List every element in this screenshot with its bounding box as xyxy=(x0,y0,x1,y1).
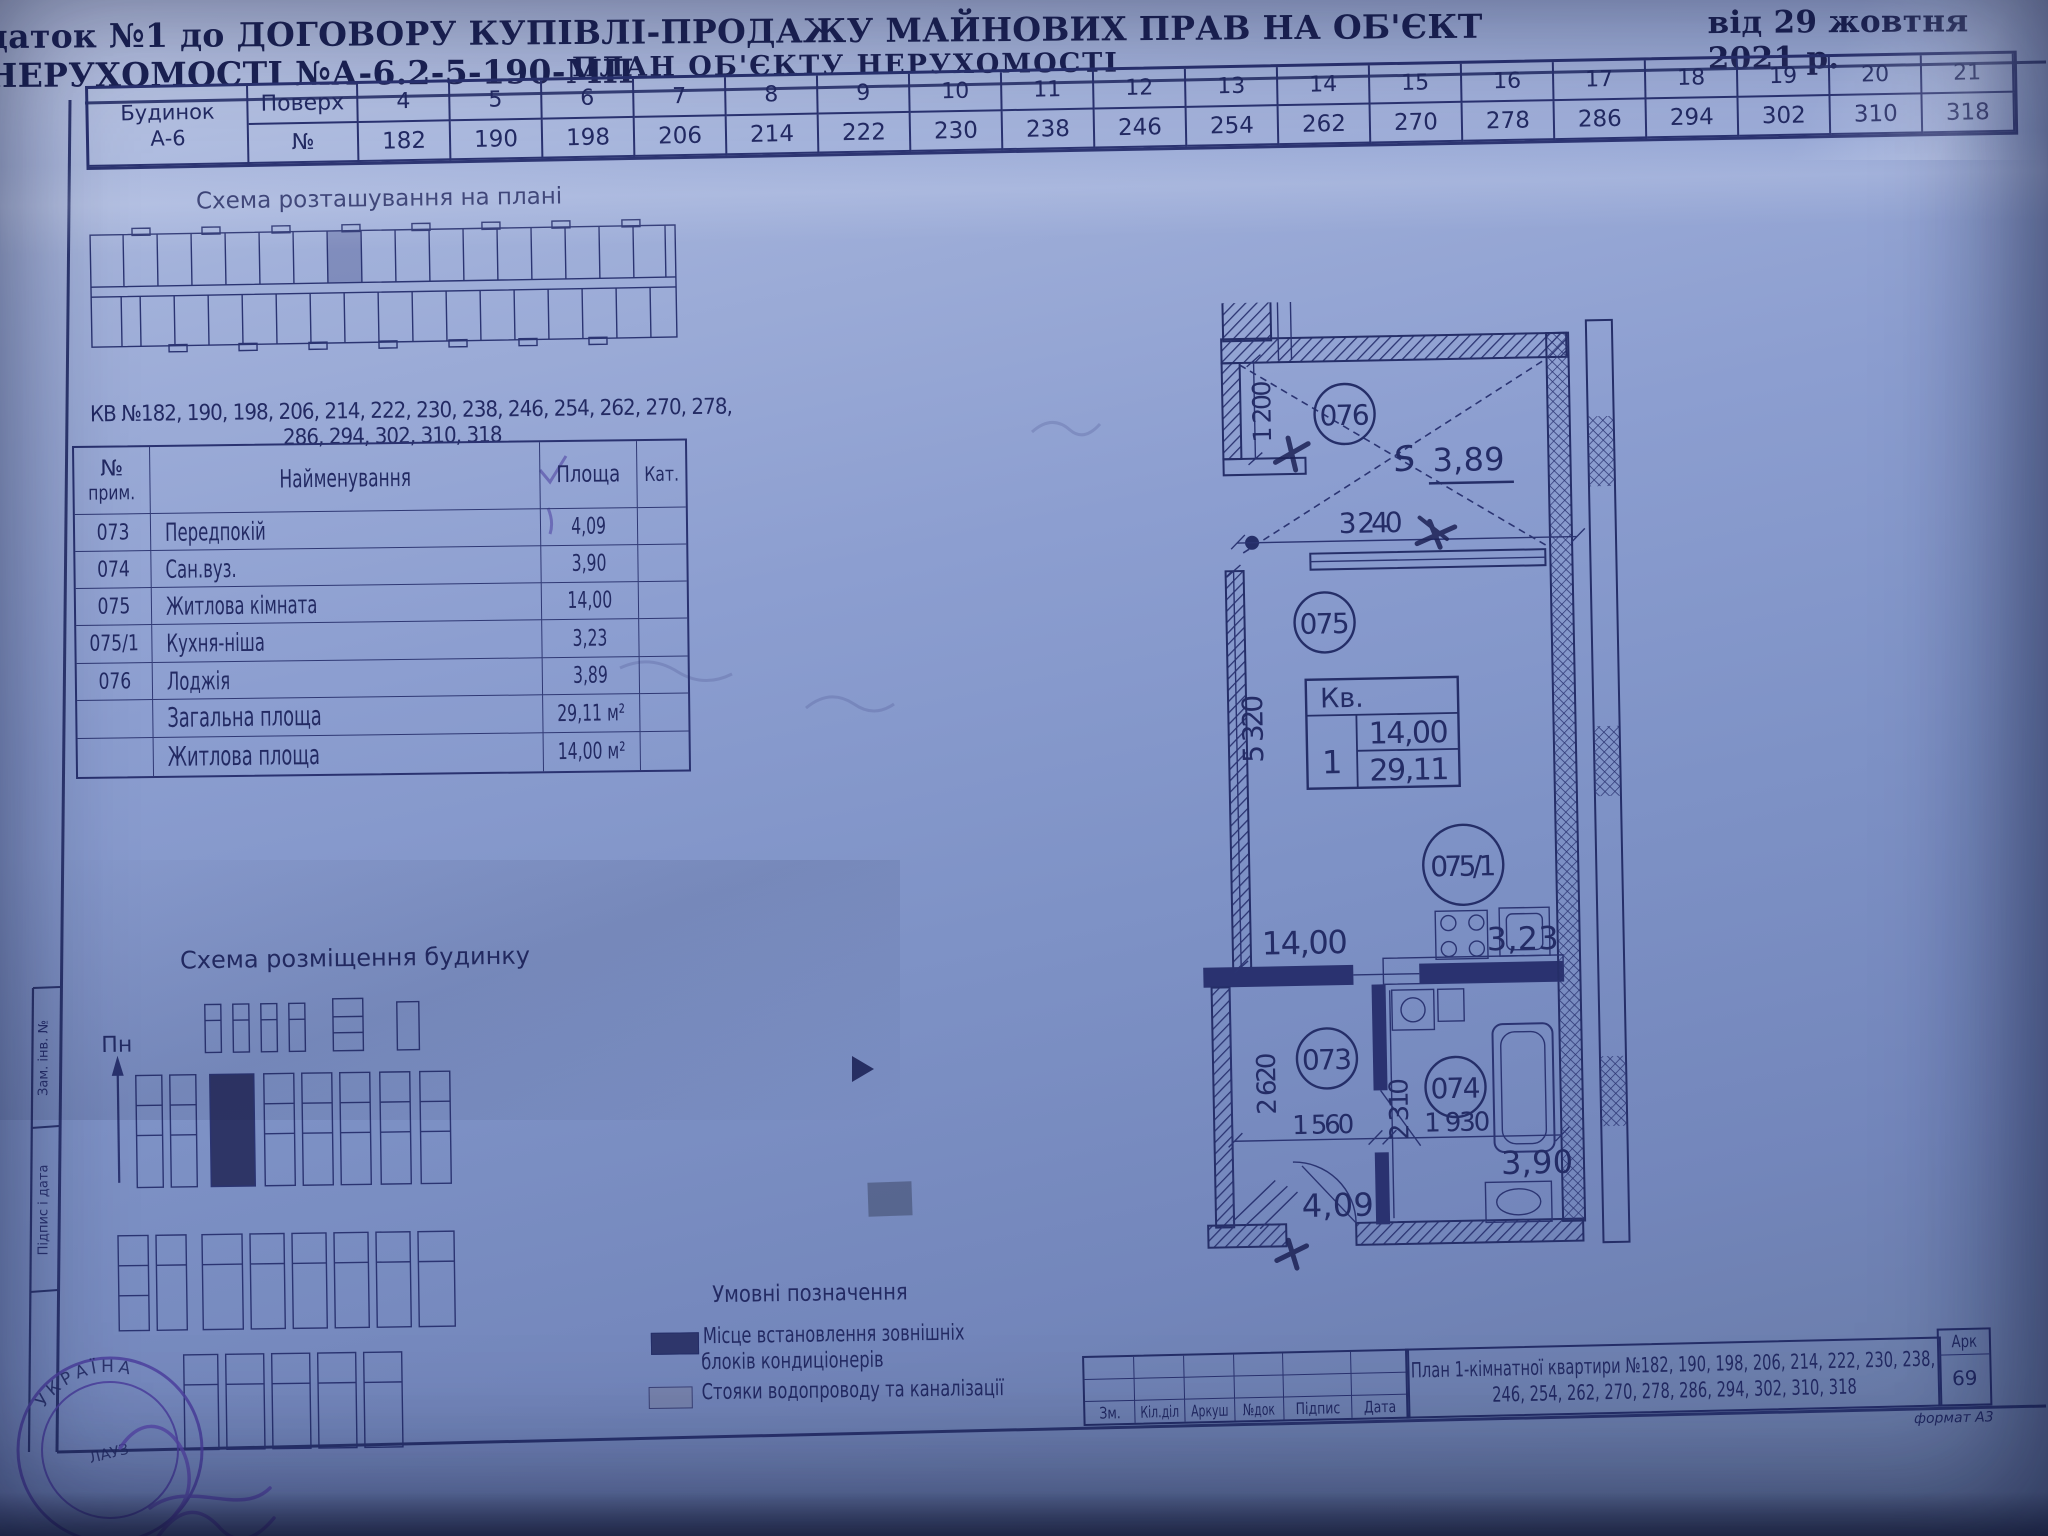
area-underline xyxy=(1429,482,1514,484)
rev-col-label-text: Підпис xyxy=(1295,1398,1340,1418)
apartment-num-cell: 294 xyxy=(1647,98,1740,139)
outer-right-patch xyxy=(1594,726,1621,796)
apartment-num-cell: 318 xyxy=(1922,93,2015,134)
rev-col-label-text: №док xyxy=(1243,1399,1275,1419)
frame-strip-divider xyxy=(33,987,60,988)
wall-bottom-left xyxy=(1208,1224,1286,1247)
rev-cell xyxy=(1234,1353,1283,1376)
floor-cell: 19 xyxy=(1738,57,1831,98)
ac-unit-swatch xyxy=(651,1332,699,1355)
kv-box-label: Кв. xyxy=(1320,683,1364,715)
room-row-cat xyxy=(639,582,687,620)
building-cell: Будинок А-6 xyxy=(88,86,249,167)
rev-col-label-text: Зм. xyxy=(1099,1403,1121,1422)
apartment-num-cell: 222 xyxy=(819,113,912,154)
total-row-label: Загальна площа xyxy=(153,695,543,738)
total-row-value: 29,11 м² xyxy=(543,694,640,733)
floor-cell: 20 xyxy=(1830,55,1923,96)
rev-col-label: Дата xyxy=(1352,1395,1408,1418)
total-label: Житлова площа xyxy=(168,739,321,772)
rev-col-label: Зм. xyxy=(1085,1401,1135,1424)
site-row-b xyxy=(136,1071,452,1187)
dim-hall-width: 1 560 xyxy=(1292,1110,1355,1141)
apartment-num-cell: 238 xyxy=(1003,110,1096,151)
rev-col-label-text: Кіл.діл xyxy=(1140,1401,1179,1421)
wall-top-notch xyxy=(1222,300,1271,341)
north-label: Пн xyxy=(101,1033,132,1058)
apartment-num-cell: 246 xyxy=(1095,108,1188,149)
area-loggia: 3,89 xyxy=(1432,440,1505,479)
plan-description-box: План 1-кімнатної квартири №182, 190, 198… xyxy=(1405,1337,1942,1419)
room-row-cat xyxy=(639,618,687,657)
rev-cell xyxy=(1134,1356,1184,1379)
wall-hall-bath-upper xyxy=(1372,984,1388,1090)
room-row-cat xyxy=(638,508,686,546)
floor-cell: 5 xyxy=(450,81,543,122)
floor-row-label: Поверх xyxy=(248,84,359,125)
room-row-area: 14,00 xyxy=(542,582,639,620)
rev-col-label-text: Дата xyxy=(1364,1396,1397,1416)
stamp-country-text: УКРАЇНА xyxy=(32,1357,136,1411)
legend-item1-text1: Місце встановлення зовнішніх xyxy=(703,1321,965,1350)
total-row-cat xyxy=(640,693,688,732)
schematic-core-shaft xyxy=(327,230,362,283)
wall-living-left xyxy=(1226,571,1252,973)
room-name: Сан.вуз. xyxy=(165,553,237,583)
room-row-num: 073 xyxy=(75,514,151,552)
sheet-label-text: Арк xyxy=(1951,1332,1977,1353)
apartment-num-cell: 214 xyxy=(727,115,820,156)
apartment-num-cell: 302 xyxy=(1738,96,1831,137)
floor-cell: 12 xyxy=(1094,69,1187,110)
wall-divider-left xyxy=(1203,965,1353,988)
door-opening-line xyxy=(1353,974,1419,975)
col-header-cat: Кат. xyxy=(637,441,686,509)
room-row-area: 3,89 xyxy=(543,657,640,695)
rev-cell xyxy=(1135,1378,1185,1401)
site-row-a xyxy=(205,998,420,1053)
schematic-partitions-bottom xyxy=(121,287,651,346)
washing-machine xyxy=(1392,989,1435,1030)
entry-hatch-marks xyxy=(1232,1180,1298,1229)
legend-title-text: Умовні позначення xyxy=(712,1279,908,1308)
rev-cell xyxy=(1085,1379,1135,1402)
frame-strip-divider xyxy=(30,1290,58,1292)
col-header-name-text: Найменування xyxy=(279,462,411,493)
area-living: 14,00 xyxy=(1261,923,1348,963)
floor-cell: 9 xyxy=(818,74,911,115)
kv-box-living-area: 14,00 xyxy=(1368,715,1449,752)
round-stamp: УКРАЇНА ЛАУЗ xyxy=(0,1298,340,1536)
room-name: Лоджія xyxy=(167,666,231,696)
legend-item1-line2: блоків кондиціонерів xyxy=(701,1347,948,1375)
room-name: Житлова кімната xyxy=(166,590,318,621)
dim-bath-depth: 2 310 xyxy=(1384,1078,1415,1141)
apartment-num-cell: 198 xyxy=(543,118,636,159)
room-row-name: Кухня-ніша xyxy=(152,620,542,663)
bathroom-fixtures xyxy=(1392,987,1556,1224)
legend-title: Умовні позначення xyxy=(712,1279,942,1308)
format-note: формат А3 xyxy=(1844,1409,1994,1428)
wall-bottom-right xyxy=(1356,1219,1583,1245)
rev-cell xyxy=(1185,1377,1235,1400)
kv-box-number: 1 xyxy=(1322,743,1343,781)
dim-loggia-width: 3 240 xyxy=(1338,506,1403,540)
wall-loggia-left xyxy=(1222,363,1242,459)
room-row-area: 4,09 xyxy=(541,508,638,546)
room-row-cat xyxy=(640,656,688,694)
schematic-corridor xyxy=(91,277,676,297)
room-row-name: Житлова кімната xyxy=(152,583,542,625)
area-bath: 3,90 xyxy=(1501,1143,1574,1182)
frame-left-line xyxy=(57,100,70,1452)
apartment-floor-plan: 3 240 1 200 5 320 2 620 2 310 1 560 1 93… xyxy=(1120,295,1679,1305)
north-arrow: Пн xyxy=(101,1033,134,1183)
handwritten-s: S xyxy=(1391,438,1419,481)
building-floor-schematic xyxy=(87,217,689,355)
col-header-num-line1: № xyxy=(100,456,123,482)
room-name: Кухня-ніша xyxy=(166,628,265,658)
outer-right-patch xyxy=(1588,416,1615,486)
room-row-num: 075/1 xyxy=(76,625,152,664)
room-row-num: 075 xyxy=(76,588,152,626)
total-row-num xyxy=(78,738,154,777)
room-num: 074 xyxy=(96,557,129,582)
apartment-num-cell: 270 xyxy=(1371,103,1464,144)
window-midline xyxy=(1310,557,1545,562)
apartment-num-cell: 230 xyxy=(911,111,1004,152)
room-area: 4,09 xyxy=(571,513,606,539)
rev-cell xyxy=(1235,1375,1284,1398)
legend-item1-line1: Місце встановлення зовнішніх xyxy=(703,1319,1057,1349)
col-header-name: Найменування xyxy=(150,442,541,514)
room-circle-kitchen: 075/1 xyxy=(1430,849,1497,883)
dim-loggia-depth: 1 200 xyxy=(1247,380,1277,443)
sheet-number-text: 69 xyxy=(1952,1366,1978,1391)
room-name: Передпокій xyxy=(165,516,266,546)
total-row-value: 14,00 м² xyxy=(544,732,641,771)
floor-cell: 7 xyxy=(634,77,727,118)
rev-col-label: Аркуш xyxy=(1185,1399,1235,1422)
sheet-number-cell: 69 xyxy=(1939,1354,1990,1401)
room-row-area: 3,23 xyxy=(542,619,639,658)
rev-col-label: Підпис xyxy=(1284,1396,1352,1420)
room-row-area: 3,90 xyxy=(541,545,638,583)
room-row-name: Передпокій xyxy=(151,509,541,551)
wall-right xyxy=(1546,333,1585,1221)
dim-bath-width: 1 930 xyxy=(1424,1107,1491,1138)
scanned-document-photo: даток №1 до ДОГОВОРУ КУПІВЛІ-ПРОДАЖУ МАЙ… xyxy=(0,0,2048,1536)
rev-col-label: №док xyxy=(1235,1397,1284,1420)
area-hall: 4,09 xyxy=(1301,1186,1374,1225)
total-label: Загальна площа xyxy=(167,701,322,734)
room-row-num: 076 xyxy=(77,663,153,701)
floor-cell: 10 xyxy=(910,72,1003,113)
wall-hall-bath-lower xyxy=(1375,1152,1390,1224)
apartment-num-cell: 310 xyxy=(1830,94,1923,135)
floor-cell: 18 xyxy=(1646,59,1739,100)
apartment-num-cell: 278 xyxy=(1463,101,1556,142)
legend-item2-text: Стояки водопроводу та каналізації xyxy=(701,1376,1004,1405)
apartment-num-cell: 190 xyxy=(451,120,544,161)
floor-cell: 13 xyxy=(1186,67,1279,108)
location-scheme-title: Схема розташування на плані xyxy=(196,183,563,214)
frame-label-upper-text: Зам. інв. № xyxy=(37,1020,52,1096)
title-block: Зм. Кіл.діл Аркуш №док Підпис Дата План … xyxy=(1082,1327,2004,1448)
outer-right-patch xyxy=(1600,1056,1627,1126)
frame-label-lower-text: Підпис і дата xyxy=(37,1165,52,1256)
legend-item1-text2: блоків кондиціонерів xyxy=(701,1348,884,1376)
site-highlighted-building xyxy=(210,1074,256,1187)
rev-cell xyxy=(1084,1357,1134,1380)
wall-top xyxy=(1221,333,1566,364)
floor-cell: 15 xyxy=(1370,64,1463,105)
rev-cell xyxy=(1184,1355,1234,1378)
room-circle-loggia: 076 xyxy=(1319,399,1370,433)
floor-cell: 4 xyxy=(358,82,451,123)
room-area: 3,89 xyxy=(573,662,608,688)
frame-label-lower: Підпис і дата xyxy=(37,1165,52,1256)
area-kitchen: 3,23 xyxy=(1486,919,1559,958)
floor-cell: 8 xyxy=(726,76,819,117)
gray-smudge-mark xyxy=(867,1181,912,1217)
pointer-triangle-mark xyxy=(852,1056,874,1082)
rev-col-label-text: Аркуш xyxy=(1191,1400,1229,1420)
floor-cell: 11 xyxy=(1002,71,1095,112)
washbasin xyxy=(1485,1181,1552,1222)
floor-cell: 21 xyxy=(1922,54,2015,95)
col-header-num: № прим. xyxy=(74,447,151,515)
apartment-num-cell: 262 xyxy=(1279,104,1372,145)
apartment-num-cell: 182 xyxy=(359,121,452,162)
room-area: 3,90 xyxy=(572,550,607,576)
wall-divider-right xyxy=(1419,961,1563,984)
col-header-area-text: Площа xyxy=(556,461,620,488)
room-row-cat xyxy=(638,545,686,583)
rooms-area-table: № прим. Найменування Площа Кат. 073 Пере… xyxy=(72,438,691,778)
apartment-num-cell: 286 xyxy=(1555,99,1648,140)
apartment-num-cell: 254 xyxy=(1187,106,1280,147)
room-num: 073 xyxy=(96,520,129,545)
format-note-text: формат А3 xyxy=(1914,1409,1994,1427)
floor-cell: 17 xyxy=(1554,60,1647,101)
riser-swatch xyxy=(649,1386,693,1409)
sheet-box: Арк 69 xyxy=(1937,1327,1993,1406)
room-num: 075/1 xyxy=(89,631,139,657)
room-num: 075 xyxy=(97,594,130,619)
total-row-num xyxy=(77,700,153,739)
rev-col-label: Кіл.діл xyxy=(1135,1400,1185,1423)
total-value: 14,00 м² xyxy=(558,738,626,765)
room-circle-bath: 074 xyxy=(1430,1072,1481,1106)
floor-cell: 14 xyxy=(1278,65,1371,106)
kv-info-box: Кв. 1 14,00 29,11 xyxy=(1306,677,1460,790)
frame-label-upper: Зам. інв. № xyxy=(37,1020,52,1096)
room-num: 076 xyxy=(98,669,131,694)
building-value: А-6 xyxy=(150,125,186,152)
total-row-label: Житлова площа xyxy=(154,733,544,776)
dim-living-depth: 5 320 xyxy=(1236,694,1270,763)
room-row-name: Сан.вуз. xyxy=(151,546,541,588)
signature-scrawl xyxy=(120,1426,300,1536)
room-area: 14,00 xyxy=(567,587,612,614)
apartment-num-cell: 206 xyxy=(635,116,728,157)
room-row-name: Лоджія xyxy=(153,658,543,700)
frame-strip-divider xyxy=(31,1126,59,1128)
faint-pencil-scribbles xyxy=(620,422,1100,711)
num-row-label: № xyxy=(249,123,360,164)
room-circle-living: 075 xyxy=(1299,607,1350,641)
dim-hall-depth: 2 620 xyxy=(1252,1052,1283,1115)
floor-cell: 16 xyxy=(1462,62,1555,103)
site-scheme-title: Схема розміщення будинку xyxy=(180,942,530,975)
col-header-cat-text: Кат. xyxy=(644,462,679,486)
bathtub-inner xyxy=(1500,1031,1546,1144)
col-header-area: Площа xyxy=(540,441,638,509)
floor-cell: 6 xyxy=(542,79,635,120)
room-row-num: 074 xyxy=(75,551,151,589)
room-circle-hall: 073 xyxy=(1302,1043,1353,1077)
total-row-cat xyxy=(641,731,689,770)
room-area: 3,23 xyxy=(573,625,608,651)
total-value: 29,11 м² xyxy=(557,700,625,727)
kv-box-total-area: 29,11 xyxy=(1369,752,1450,789)
sheet-label-cell: Арк xyxy=(1939,1329,1990,1355)
col-header-num-line2: прим. xyxy=(88,481,135,505)
building-label: Будинок xyxy=(120,98,215,126)
bath-cabinet xyxy=(1438,989,1465,1021)
